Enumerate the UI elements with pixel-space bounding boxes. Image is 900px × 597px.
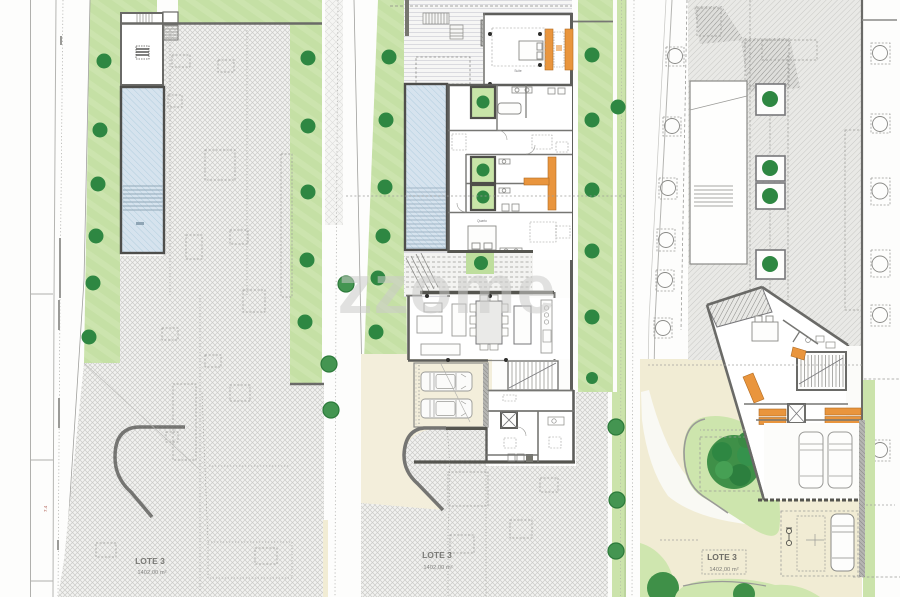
svg-text:zzome: zzome [338, 250, 557, 328]
svg-text:1402,00 m²: 1402,00 m² [709, 567, 738, 573]
svg-text:LOTE 3: LOTE 3 [422, 550, 452, 560]
svg-text:Quarto: Quarto [477, 219, 487, 223]
svg-text:7.4: 7.4 [43, 505, 48, 512]
svg-text:Suite: Suite [514, 69, 521, 73]
svg-text:LOTE 3: LOTE 3 [707, 552, 737, 562]
svg-text:1402,00 m²: 1402,00 m² [423, 565, 452, 571]
svg-text:LOTE 3: LOTE 3 [135, 556, 165, 566]
svg-text:1402,00 m²: 1402,00 m² [137, 570, 166, 576]
